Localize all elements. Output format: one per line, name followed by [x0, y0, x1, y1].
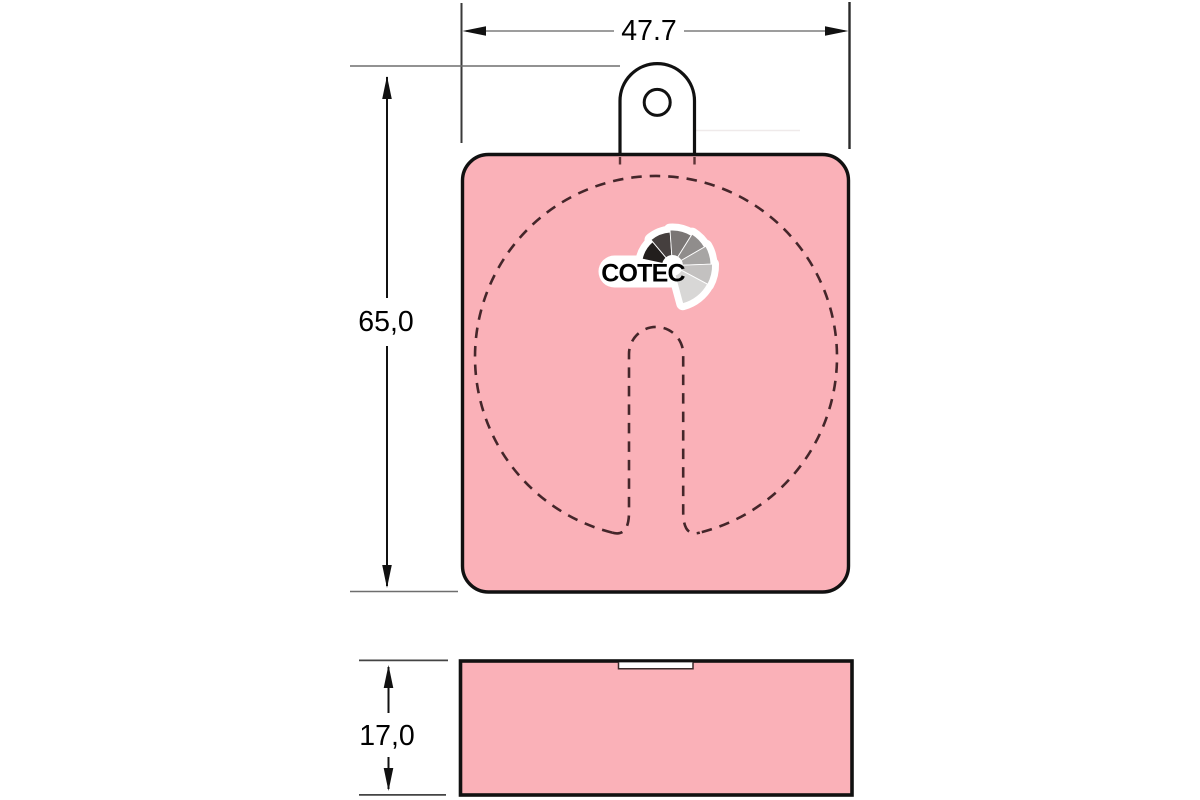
svg-text:COTEC: COTEC — [601, 260, 685, 288]
svg-text:47.7: 47.7 — [621, 15, 676, 47]
svg-text:65,0: 65,0 — [358, 306, 413, 338]
svg-text:17,0: 17,0 — [359, 720, 414, 752]
